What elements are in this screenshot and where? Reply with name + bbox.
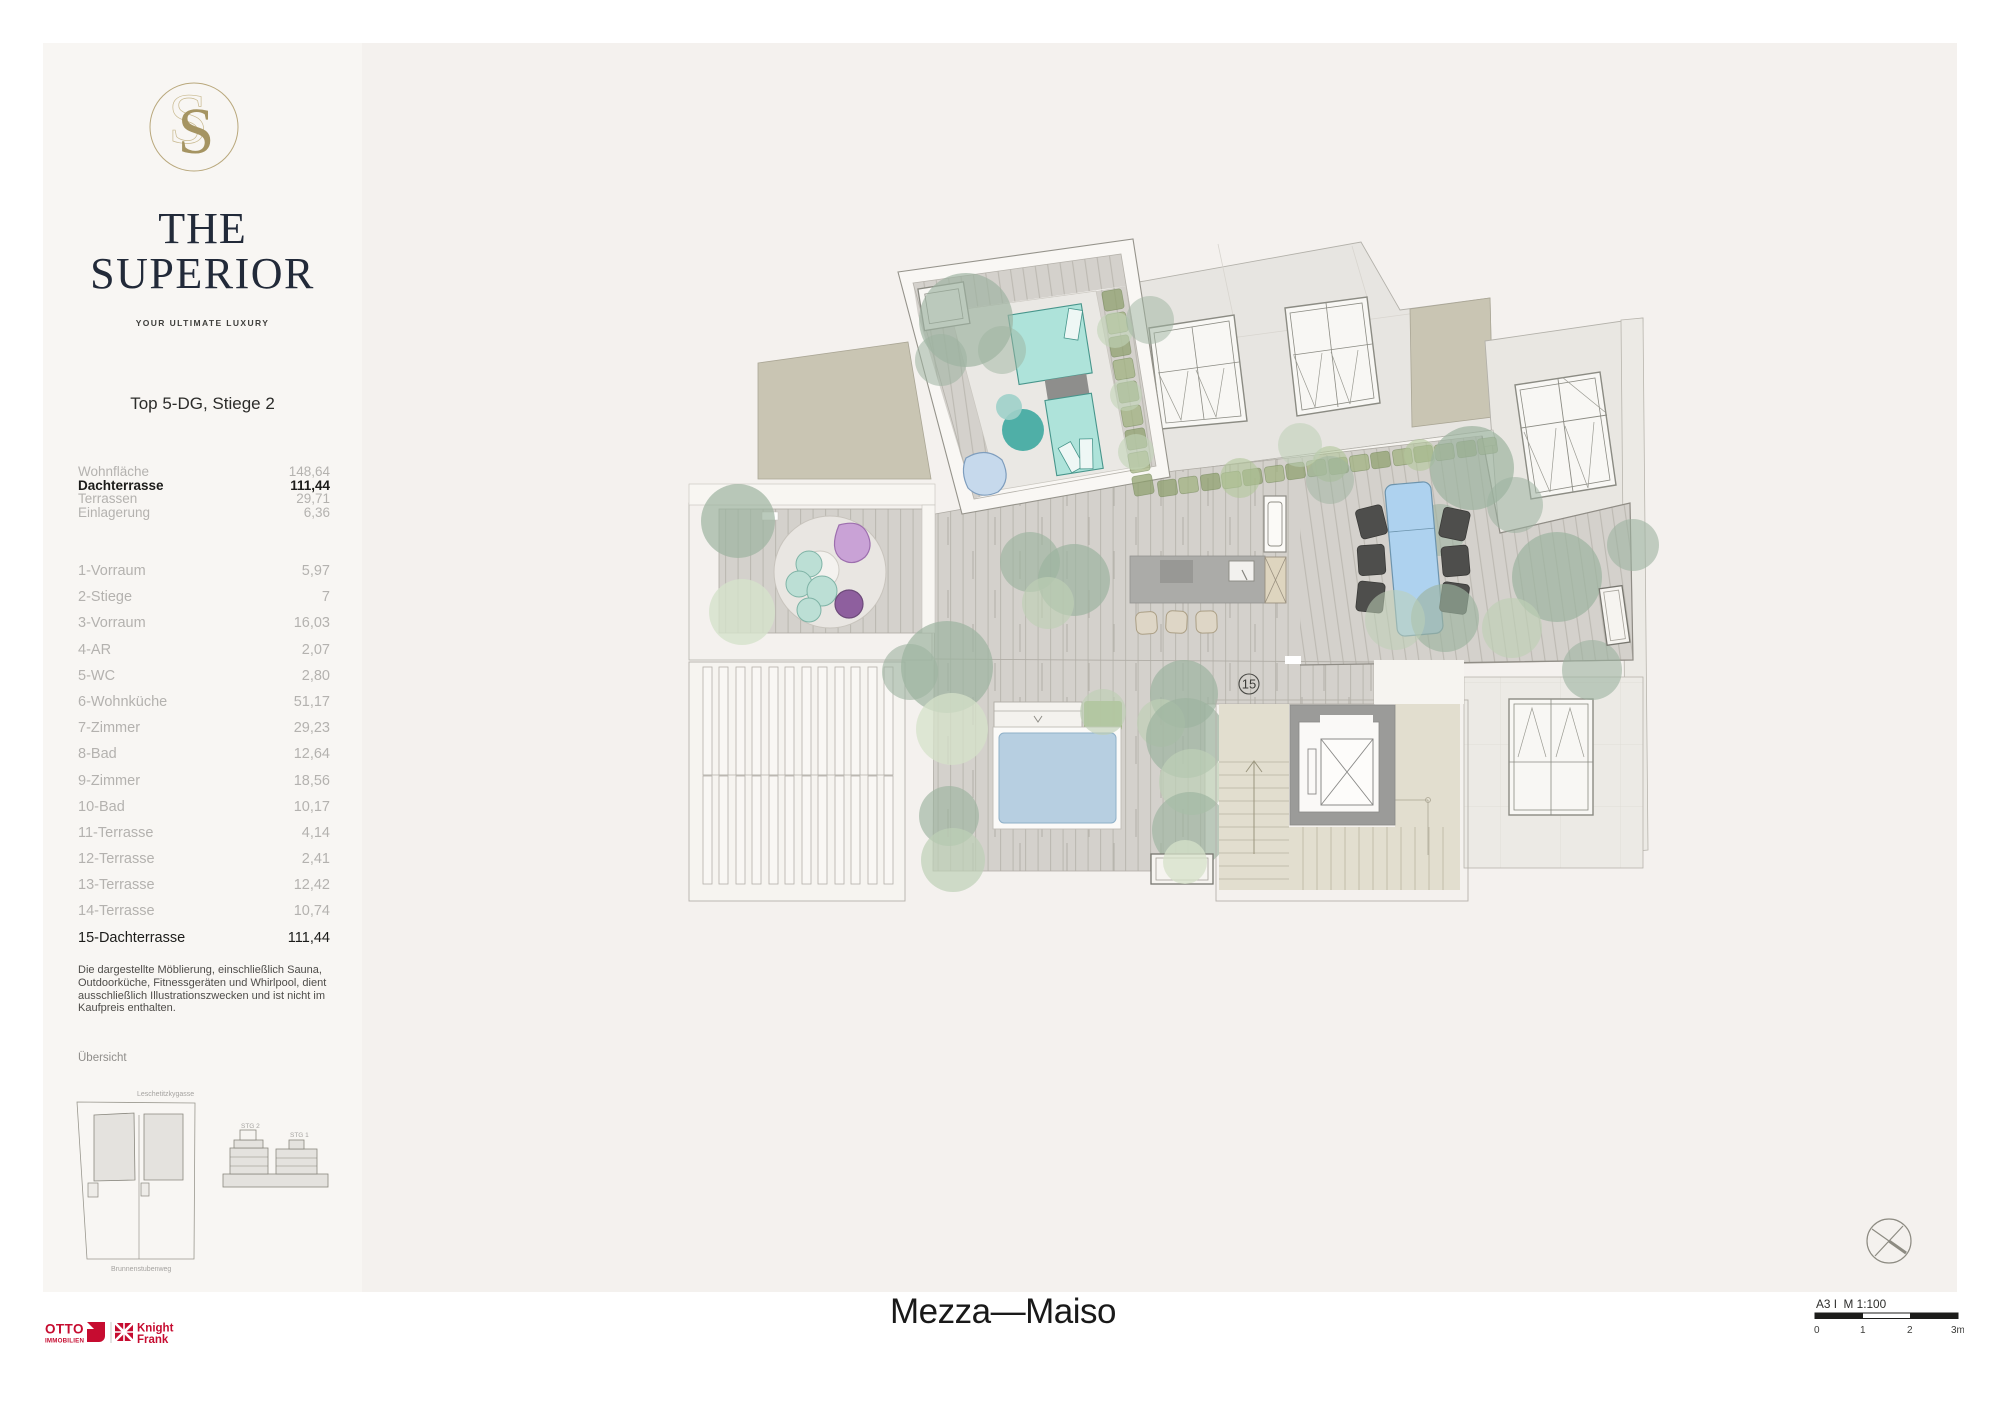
svg-text:2: 2 xyxy=(1907,1325,1913,1336)
svg-text:1: 1 xyxy=(1860,1325,1866,1336)
svg-text:0: 0 xyxy=(1814,1325,1820,1336)
svg-text:3m: 3m xyxy=(1951,1325,1964,1336)
svg-text:15: 15 xyxy=(1242,677,1256,692)
